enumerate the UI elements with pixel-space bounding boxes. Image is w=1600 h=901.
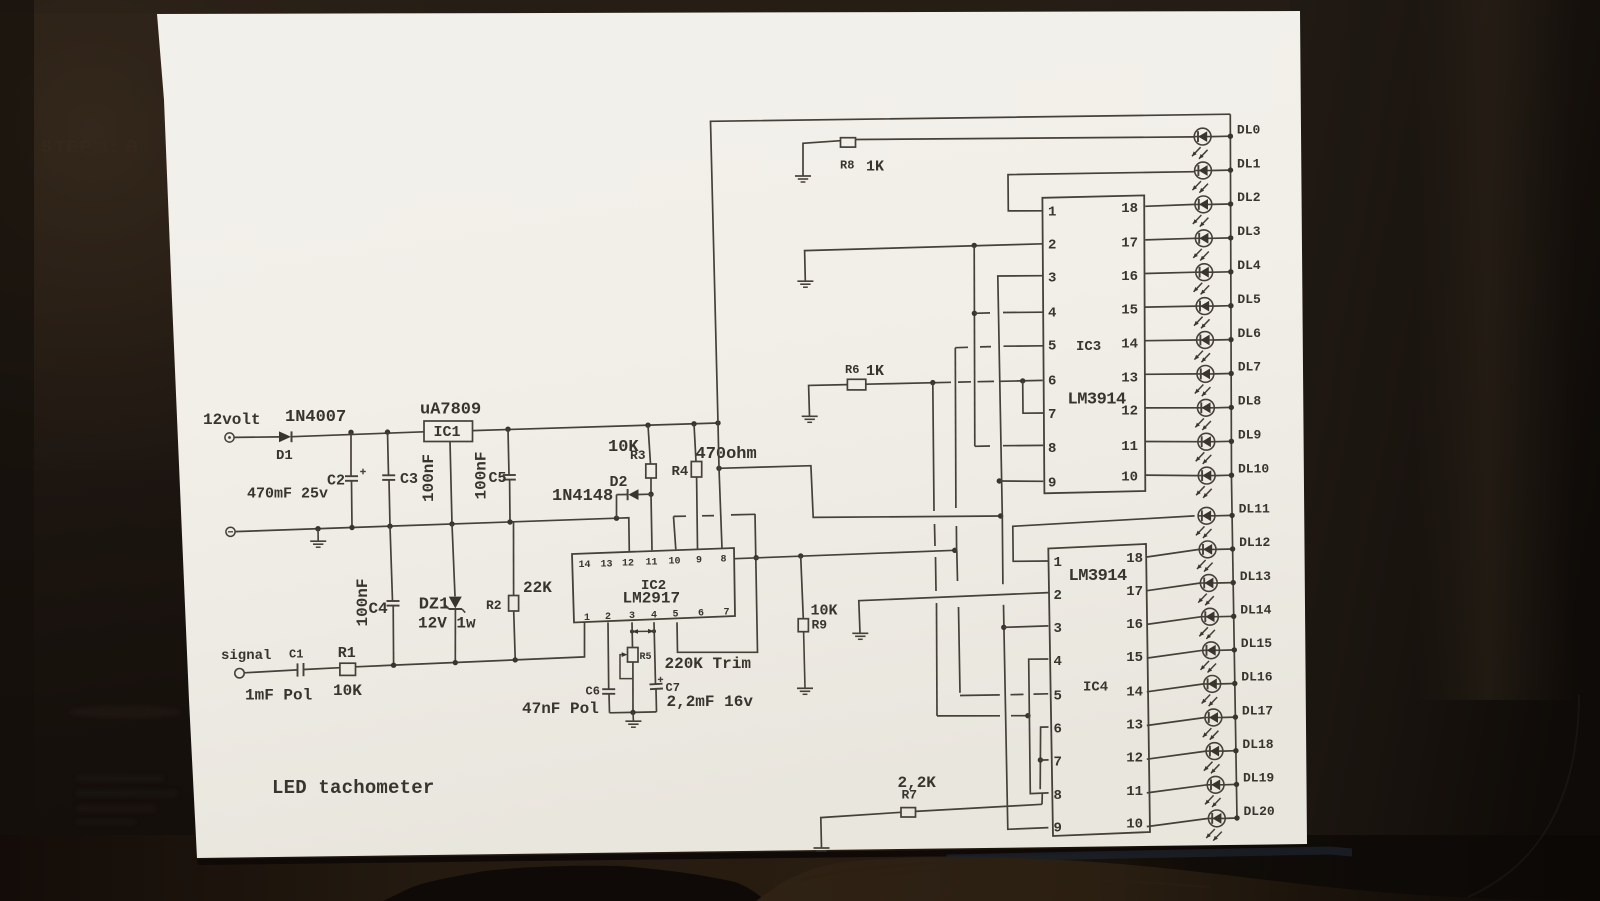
svg-text:DL17: DL17 bbox=[1242, 703, 1273, 718]
svg-text:4: 4 bbox=[651, 610, 657, 621]
svg-text:C5: C5 bbox=[489, 470, 507, 487]
svg-text:100nF: 100nF bbox=[420, 454, 438, 502]
svg-text:3: 3 bbox=[1054, 621, 1062, 637]
svg-text:7: 7 bbox=[723, 607, 729, 618]
svg-text:DL12: DL12 bbox=[1239, 535, 1270, 550]
svg-text:8: 8 bbox=[720, 554, 726, 565]
svg-text:1N4148: 1N4148 bbox=[552, 487, 613, 506]
svg-text:9: 9 bbox=[1054, 821, 1062, 837]
svg-text:15: 15 bbox=[1126, 650, 1143, 666]
svg-text:1mF Pol: 1mF Pol bbox=[245, 687, 312, 705]
svg-text:DL9: DL9 bbox=[1238, 428, 1262, 443]
svg-text:3: 3 bbox=[629, 611, 635, 622]
svg-text:LM3914: LM3914 bbox=[1068, 391, 1127, 410]
svg-text:17: 17 bbox=[1121, 236, 1138, 252]
svg-text:DL11: DL11 bbox=[1239, 502, 1270, 517]
svg-text:13: 13 bbox=[1121, 371, 1138, 387]
svg-text:2: 2 bbox=[1048, 238, 1056, 254]
svg-text:3: 3 bbox=[1048, 271, 1056, 287]
svg-text:signal: signal bbox=[221, 648, 271, 664]
svg-text:4: 4 bbox=[1054, 654, 1062, 670]
svg-text:2,2mF 16v: 2,2mF 16v bbox=[667, 693, 754, 711]
svg-text:DL14: DL14 bbox=[1240, 603, 1271, 618]
svg-text:DL20: DL20 bbox=[1244, 804, 1275, 819]
svg-text:DL2: DL2 bbox=[1237, 190, 1261, 205]
svg-text:470mF 25v: 470mF 25v bbox=[247, 486, 328, 503]
svg-text:DL19: DL19 bbox=[1243, 771, 1274, 786]
svg-text:12: 12 bbox=[1126, 751, 1143, 767]
svg-text:C6: C6 bbox=[586, 685, 600, 699]
svg-text:5: 5 bbox=[672, 609, 678, 620]
svg-text:1: 1 bbox=[1054, 555, 1062, 571]
svg-text:11: 11 bbox=[1126, 784, 1143, 800]
svg-text:16: 16 bbox=[1126, 617, 1143, 633]
svg-text:18: 18 bbox=[1126, 551, 1143, 567]
svg-text:4: 4 bbox=[1048, 306, 1056, 322]
svg-text:6: 6 bbox=[698, 608, 704, 619]
svg-text:10: 10 bbox=[668, 556, 680, 567]
svg-text:R5: R5 bbox=[640, 652, 652, 663]
svg-text:13: 13 bbox=[600, 559, 612, 570]
svg-text:1: 1 bbox=[584, 613, 590, 624]
svg-text:D1: D1 bbox=[276, 448, 293, 464]
svg-text:LED tachometer: LED tachometer bbox=[272, 777, 434, 799]
svg-text:DL1: DL1 bbox=[1237, 156, 1261, 171]
svg-text:R8: R8 bbox=[840, 159, 854, 173]
svg-text:C1: C1 bbox=[289, 648, 303, 662]
svg-text:8: 8 bbox=[1048, 441, 1056, 457]
svg-text:6: 6 bbox=[1048, 374, 1056, 390]
svg-text:11: 11 bbox=[1121, 439, 1138, 455]
svg-text:2: 2 bbox=[605, 612, 611, 623]
svg-text:6: 6 bbox=[1054, 722, 1062, 738]
svg-text:R2: R2 bbox=[486, 598, 502, 613]
svg-text:1N4007: 1N4007 bbox=[285, 408, 346, 427]
svg-text:IC4: IC4 bbox=[1083, 680, 1108, 696]
svg-text:1K: 1K bbox=[866, 159, 884, 176]
svg-text:14: 14 bbox=[1121, 337, 1138, 353]
svg-text:9: 9 bbox=[1048, 476, 1056, 492]
svg-text:R6: R6 bbox=[845, 363, 859, 377]
svg-text:7: 7 bbox=[1054, 754, 1062, 770]
svg-text:R9: R9 bbox=[812, 618, 828, 633]
svg-text:DL16: DL16 bbox=[1241, 670, 1272, 685]
svg-text:DL18: DL18 bbox=[1242, 737, 1273, 752]
svg-text:2: 2 bbox=[1054, 588, 1062, 604]
svg-text:14: 14 bbox=[578, 560, 590, 571]
svg-text:15: 15 bbox=[1121, 303, 1138, 319]
svg-text:13: 13 bbox=[1126, 718, 1143, 734]
svg-text:10: 10 bbox=[1121, 470, 1138, 486]
svg-text:IC3: IC3 bbox=[1076, 339, 1101, 355]
svg-text:9: 9 bbox=[696, 555, 702, 566]
svg-text:22K: 22K bbox=[523, 579, 552, 597]
svg-text:DL8: DL8 bbox=[1238, 394, 1262, 409]
svg-text:7: 7 bbox=[1048, 407, 1056, 423]
svg-text:220K Trim: 220K Trim bbox=[665, 655, 752, 673]
svg-text:DL5: DL5 bbox=[1237, 292, 1261, 307]
svg-text:5: 5 bbox=[1054, 689, 1062, 705]
svg-text:DL15: DL15 bbox=[1241, 636, 1272, 651]
svg-text:11: 11 bbox=[645, 557, 657, 568]
svg-text:100nF: 100nF bbox=[473, 451, 491, 499]
svg-text:R1: R1 bbox=[338, 645, 356, 662]
svg-text:470ohm: 470ohm bbox=[696, 445, 757, 464]
svg-text:DL6: DL6 bbox=[1238, 326, 1262, 341]
svg-text:DL7: DL7 bbox=[1238, 360, 1261, 375]
svg-text:10K: 10K bbox=[333, 682, 362, 700]
svg-text:5: 5 bbox=[1048, 339, 1056, 355]
svg-text:8: 8 bbox=[1054, 788, 1062, 804]
svg-text:14: 14 bbox=[1126, 685, 1143, 701]
svg-text:17: 17 bbox=[1126, 584, 1143, 600]
svg-text:IC1: IC1 bbox=[434, 424, 461, 441]
svg-text:DL13: DL13 bbox=[1240, 569, 1271, 584]
svg-text:18: 18 bbox=[1121, 201, 1138, 217]
svg-text:10: 10 bbox=[1126, 817, 1143, 833]
svg-text:DL0: DL0 bbox=[1237, 122, 1261, 137]
svg-text:16: 16 bbox=[1121, 269, 1138, 285]
svg-text:12V 1w: 12V 1w bbox=[418, 615, 476, 633]
svg-text:C3: C3 bbox=[400, 471, 418, 488]
svg-text:DL10: DL10 bbox=[1238, 461, 1269, 476]
svg-text:STEP 1: B: STEP 1: B bbox=[41, 137, 140, 156]
svg-text:DL4: DL4 bbox=[1237, 258, 1261, 273]
svg-text:C2: C2 bbox=[327, 473, 345, 490]
svg-text:12volt: 12volt bbox=[203, 411, 261, 429]
svg-text:100nF: 100nF bbox=[354, 578, 372, 626]
svg-text:1K: 1K bbox=[866, 363, 884, 380]
svg-text:R7: R7 bbox=[902, 788, 918, 803]
svg-text:LM3914: LM3914 bbox=[1069, 567, 1128, 586]
svg-text:DZ1: DZ1 bbox=[419, 596, 450, 615]
svg-text:1: 1 bbox=[1048, 205, 1056, 221]
svg-text:uA7809: uA7809 bbox=[420, 401, 481, 420]
svg-text:DL3: DL3 bbox=[1237, 224, 1261, 239]
svg-text:12: 12 bbox=[622, 559, 634, 570]
svg-text:47nF Pol: 47nF Pol bbox=[522, 700, 599, 718]
svg-text:R4: R4 bbox=[672, 464, 689, 480]
svg-text:LM2917: LM2917 bbox=[623, 590, 681, 608]
svg-text:R3: R3 bbox=[630, 448, 646, 463]
